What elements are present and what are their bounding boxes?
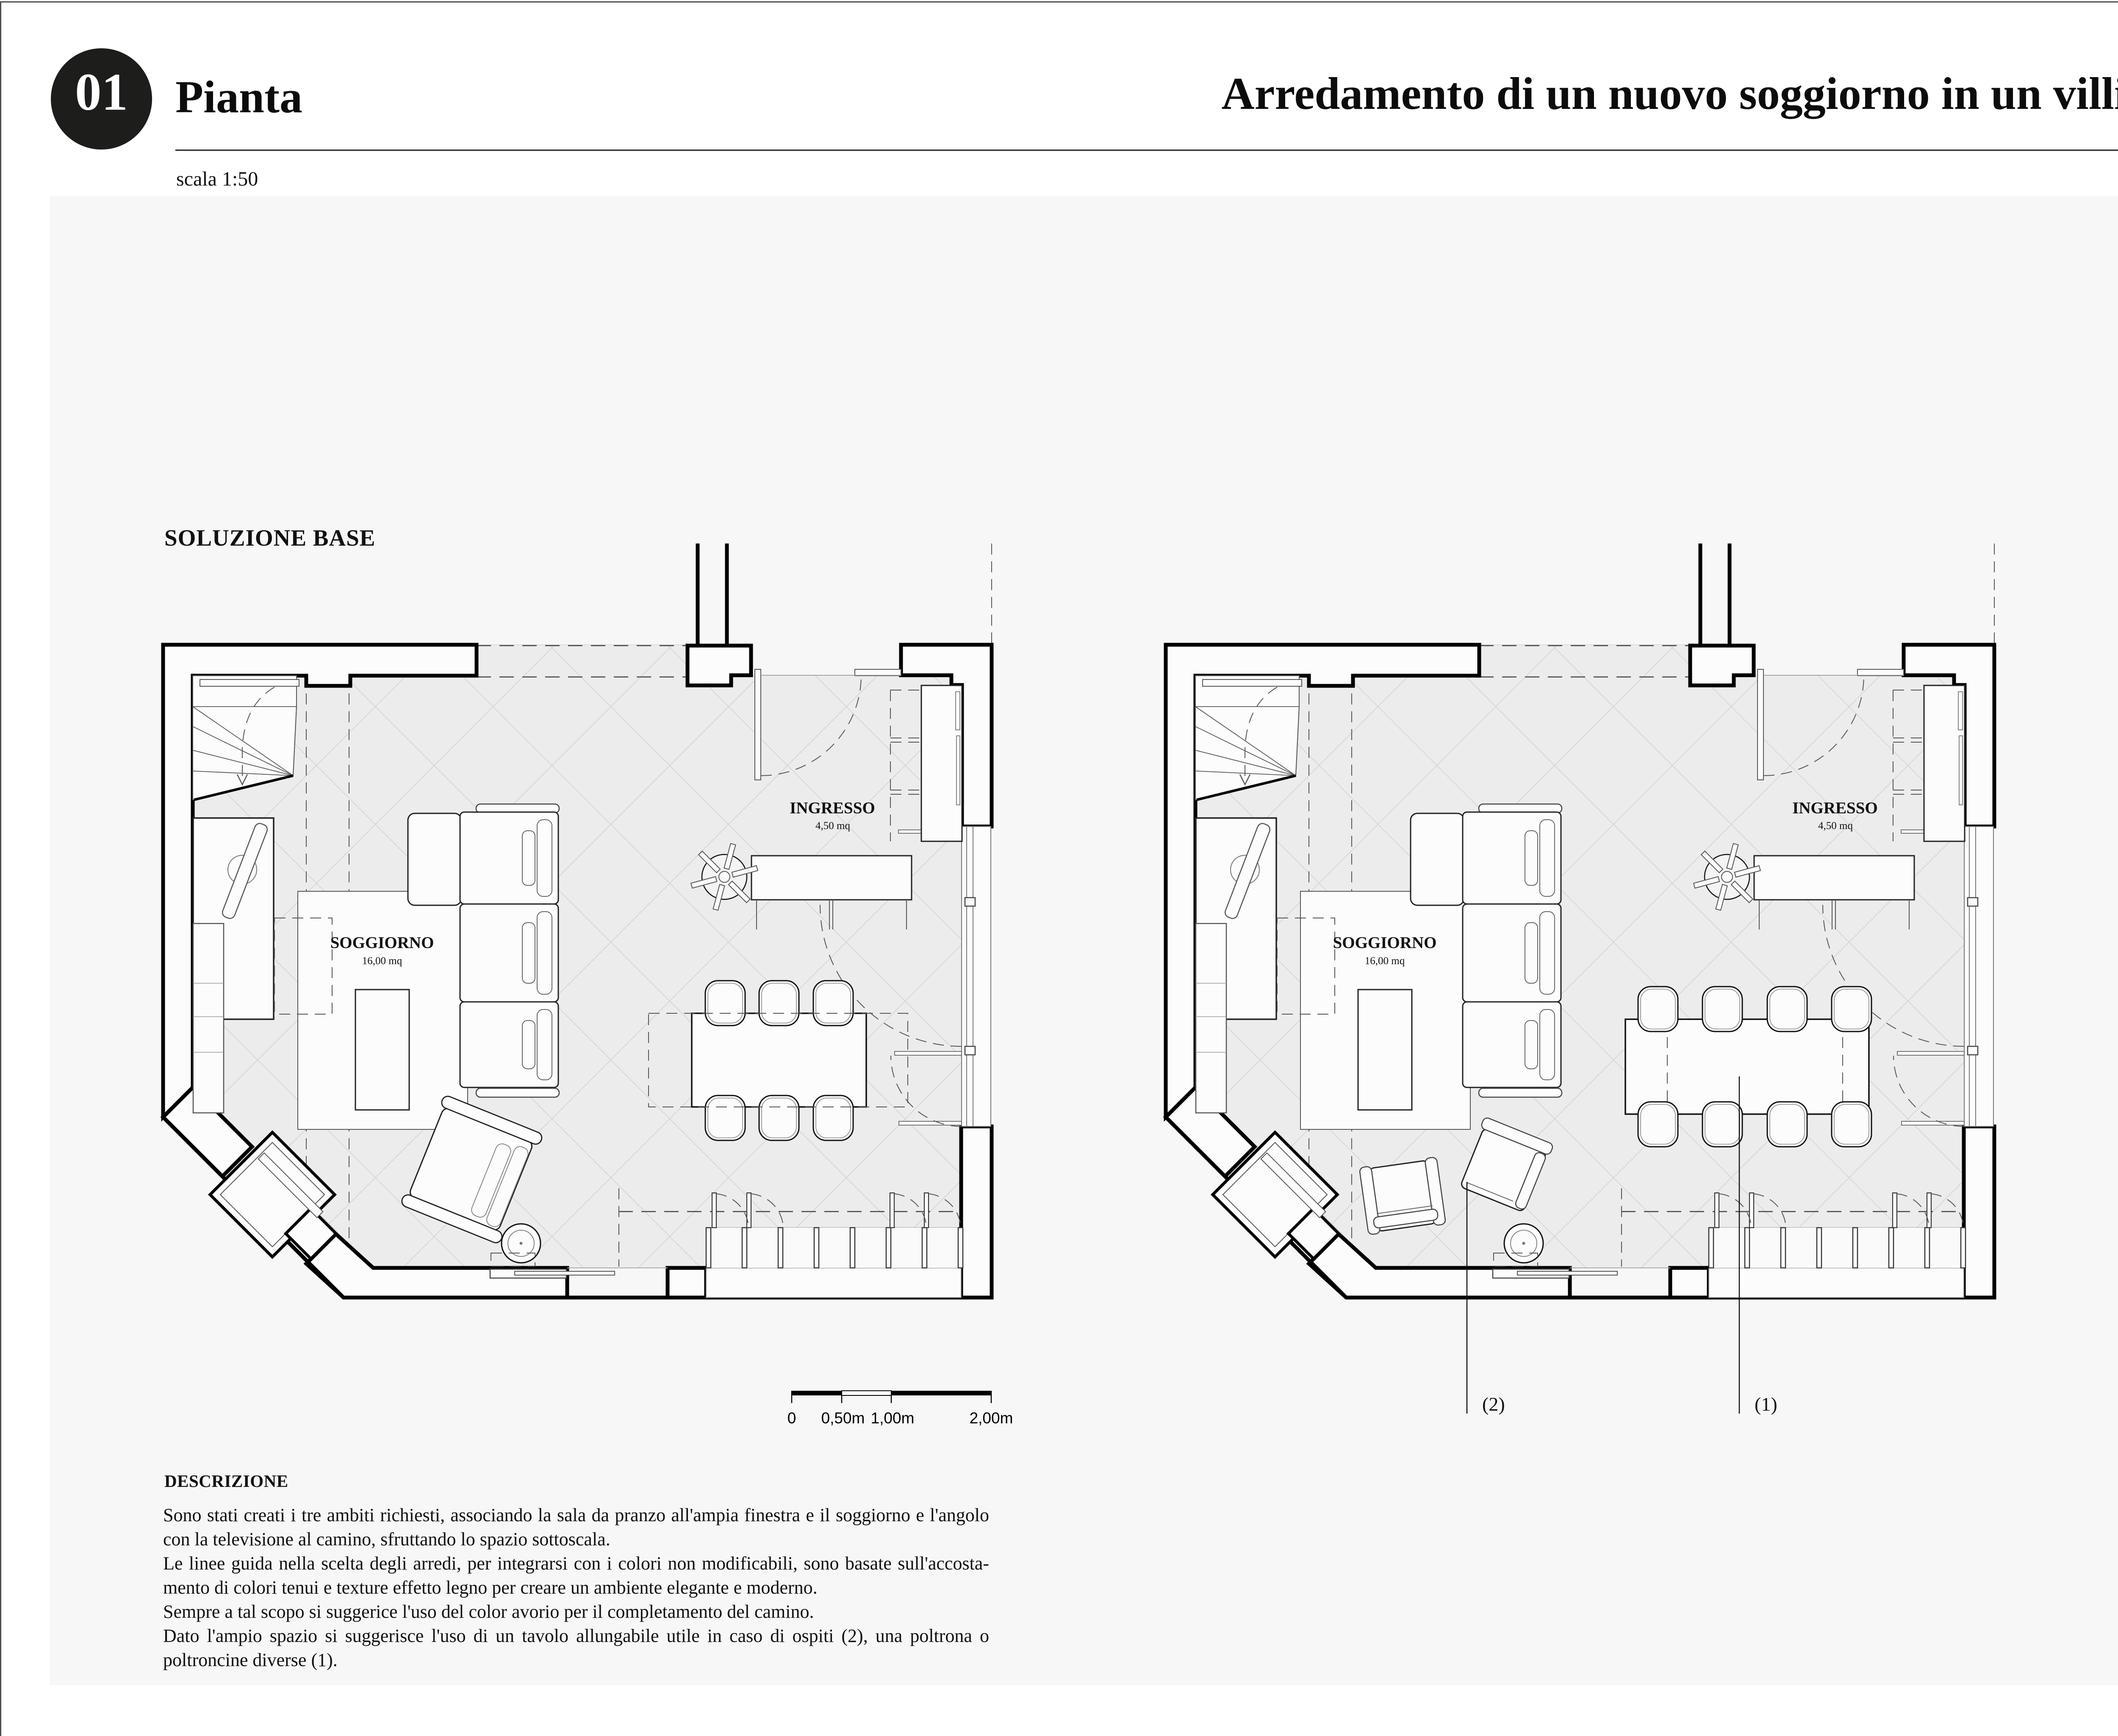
svg-text:SOGGIORNO: SOGGIORNO — [1333, 934, 1437, 952]
svg-text:4,50 mq: 4,50 mq — [815, 820, 850, 832]
svg-text:(1): (1) — [1755, 1393, 1777, 1415]
svg-text:1,00m: 1,00m — [871, 1409, 915, 1427]
svg-text:16,00 mq: 16,00 mq — [362, 955, 402, 967]
svg-text:SOGGIORNO: SOGGIORNO — [330, 934, 434, 952]
svg-text:0: 0 — [787, 1409, 796, 1427]
svg-text:INGRESSO: INGRESSO — [1792, 799, 1878, 817]
svg-text:(2): (2) — [1482, 1393, 1505, 1415]
svg-text:INGRESSO: INGRESSO — [790, 799, 875, 817]
svg-text:2,00m: 2,00m — [970, 1409, 1013, 1427]
svg-text:0,50m: 0,50m — [821, 1409, 865, 1427]
svg-text:16,00 mq: 16,00 mq — [1365, 955, 1405, 967]
svg-text:4,50 mq: 4,50 mq — [1818, 820, 1853, 832]
